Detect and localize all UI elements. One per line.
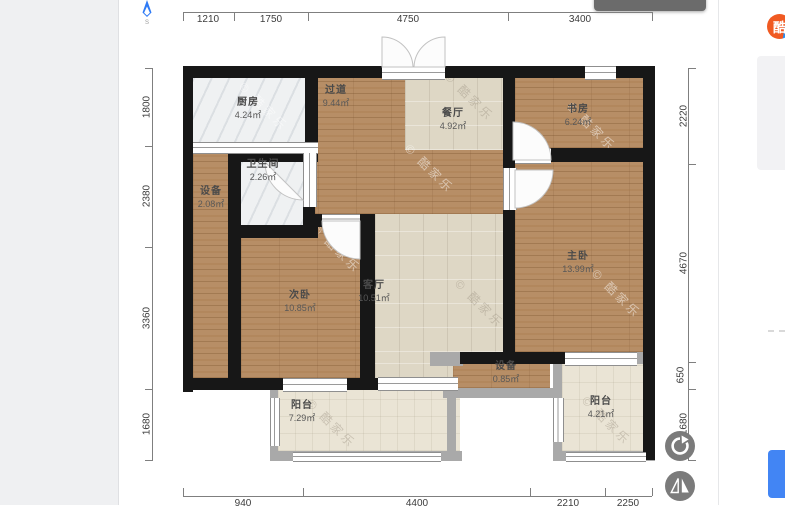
dim-tick bbox=[688, 68, 696, 69]
second-bedroom-door-arc bbox=[322, 221, 360, 259]
door-arcs-layer bbox=[0, 0, 785, 505]
dim-tick bbox=[183, 488, 184, 496]
room-label-hallway[interactable]: 过道9.44㎡ bbox=[323, 85, 350, 109]
dim-bottom-1: 4400 bbox=[406, 498, 428, 509]
study-door-arc bbox=[513, 122, 551, 160]
dim-tick bbox=[688, 460, 696, 461]
dim-bottom-3: 2250 bbox=[617, 498, 639, 509]
dim-left-0: 1800 bbox=[142, 96, 153, 118]
dim-bottom-2: 2210 bbox=[557, 498, 579, 509]
room-label-master-bedroom[interactable]: 主卧13.99㎡ bbox=[562, 251, 594, 275]
entry-door-right-arc bbox=[414, 37, 445, 67]
dim-tick bbox=[308, 12, 309, 21]
dim-tick bbox=[688, 164, 696, 165]
dim-right-2: 650 bbox=[676, 367, 687, 384]
dim-left-1: 2380 bbox=[142, 185, 153, 207]
room-label-balcony-left[interactable]: 阳台7.29㎡ bbox=[289, 400, 316, 424]
room-label-kitchen[interactable]: 厨房4.24㎡ bbox=[235, 97, 262, 121]
dim-right-1: 4670 bbox=[679, 252, 690, 274]
mirror-icon bbox=[669, 475, 691, 497]
dim-line-left bbox=[152, 68, 153, 460]
room-label-second-bedroom[interactable]: 次卧10.85㎡ bbox=[284, 290, 316, 314]
master-door-arc bbox=[515, 170, 553, 208]
dim-tick bbox=[145, 146, 153, 147]
dim-left-3: 1680 bbox=[142, 413, 153, 435]
room-label-bathroom[interactable]: 卫生间2.26㎡ bbox=[247, 159, 280, 183]
dim-top-3: 3400 bbox=[569, 14, 591, 25]
dim-tick bbox=[145, 460, 153, 461]
dim-right-0: 2220 bbox=[679, 105, 690, 127]
dim-tick bbox=[652, 12, 653, 21]
dim-line-bottom bbox=[183, 496, 652, 497]
dim-tick bbox=[530, 488, 531, 496]
dim-bottom-0: 940 bbox=[235, 498, 252, 509]
dim-tick bbox=[183, 12, 184, 21]
dim-top-2: 4750 bbox=[397, 14, 419, 25]
entry-door-left-arc bbox=[382, 37, 413, 67]
dim-left-2: 3360 bbox=[142, 307, 153, 329]
room-label-dining[interactable]: 餐厅4.92㎡ bbox=[440, 108, 467, 132]
rotate-icon bbox=[669, 435, 691, 457]
dim-tick bbox=[303, 488, 304, 496]
rotate-button[interactable] bbox=[665, 431, 695, 461]
dim-tick bbox=[652, 488, 653, 496]
dim-tick bbox=[145, 389, 153, 390]
mirror-button[interactable] bbox=[665, 471, 695, 501]
dim-tick bbox=[688, 389, 696, 390]
dim-tick bbox=[145, 68, 153, 69]
dim-tick bbox=[234, 12, 235, 21]
room-label-study[interactable]: 书房6.24㎡ bbox=[565, 104, 592, 128]
dim-tick bbox=[688, 362, 696, 363]
floorplan-editor-canvas: { "app": { "logo_char": "酷", "compass_la… bbox=[0, 0, 785, 505]
dim-tick bbox=[508, 12, 509, 21]
room-label-equipment[interactable]: 设备2.08㎡ bbox=[198, 186, 225, 210]
dim-line-top bbox=[183, 12, 652, 13]
room-label-living-room[interactable]: 客厅10.51㎡ bbox=[358, 280, 390, 304]
room-label-balcony-right[interactable]: 阳台4.21㎡ bbox=[588, 396, 615, 420]
dim-tick bbox=[145, 247, 153, 248]
dim-tick bbox=[605, 488, 606, 496]
room-label-equipment-small[interactable]: 设备0.85㎡ bbox=[493, 361, 520, 385]
dim-top-0: 1210 bbox=[197, 14, 219, 25]
dim-top-1: 1750 bbox=[260, 14, 282, 25]
